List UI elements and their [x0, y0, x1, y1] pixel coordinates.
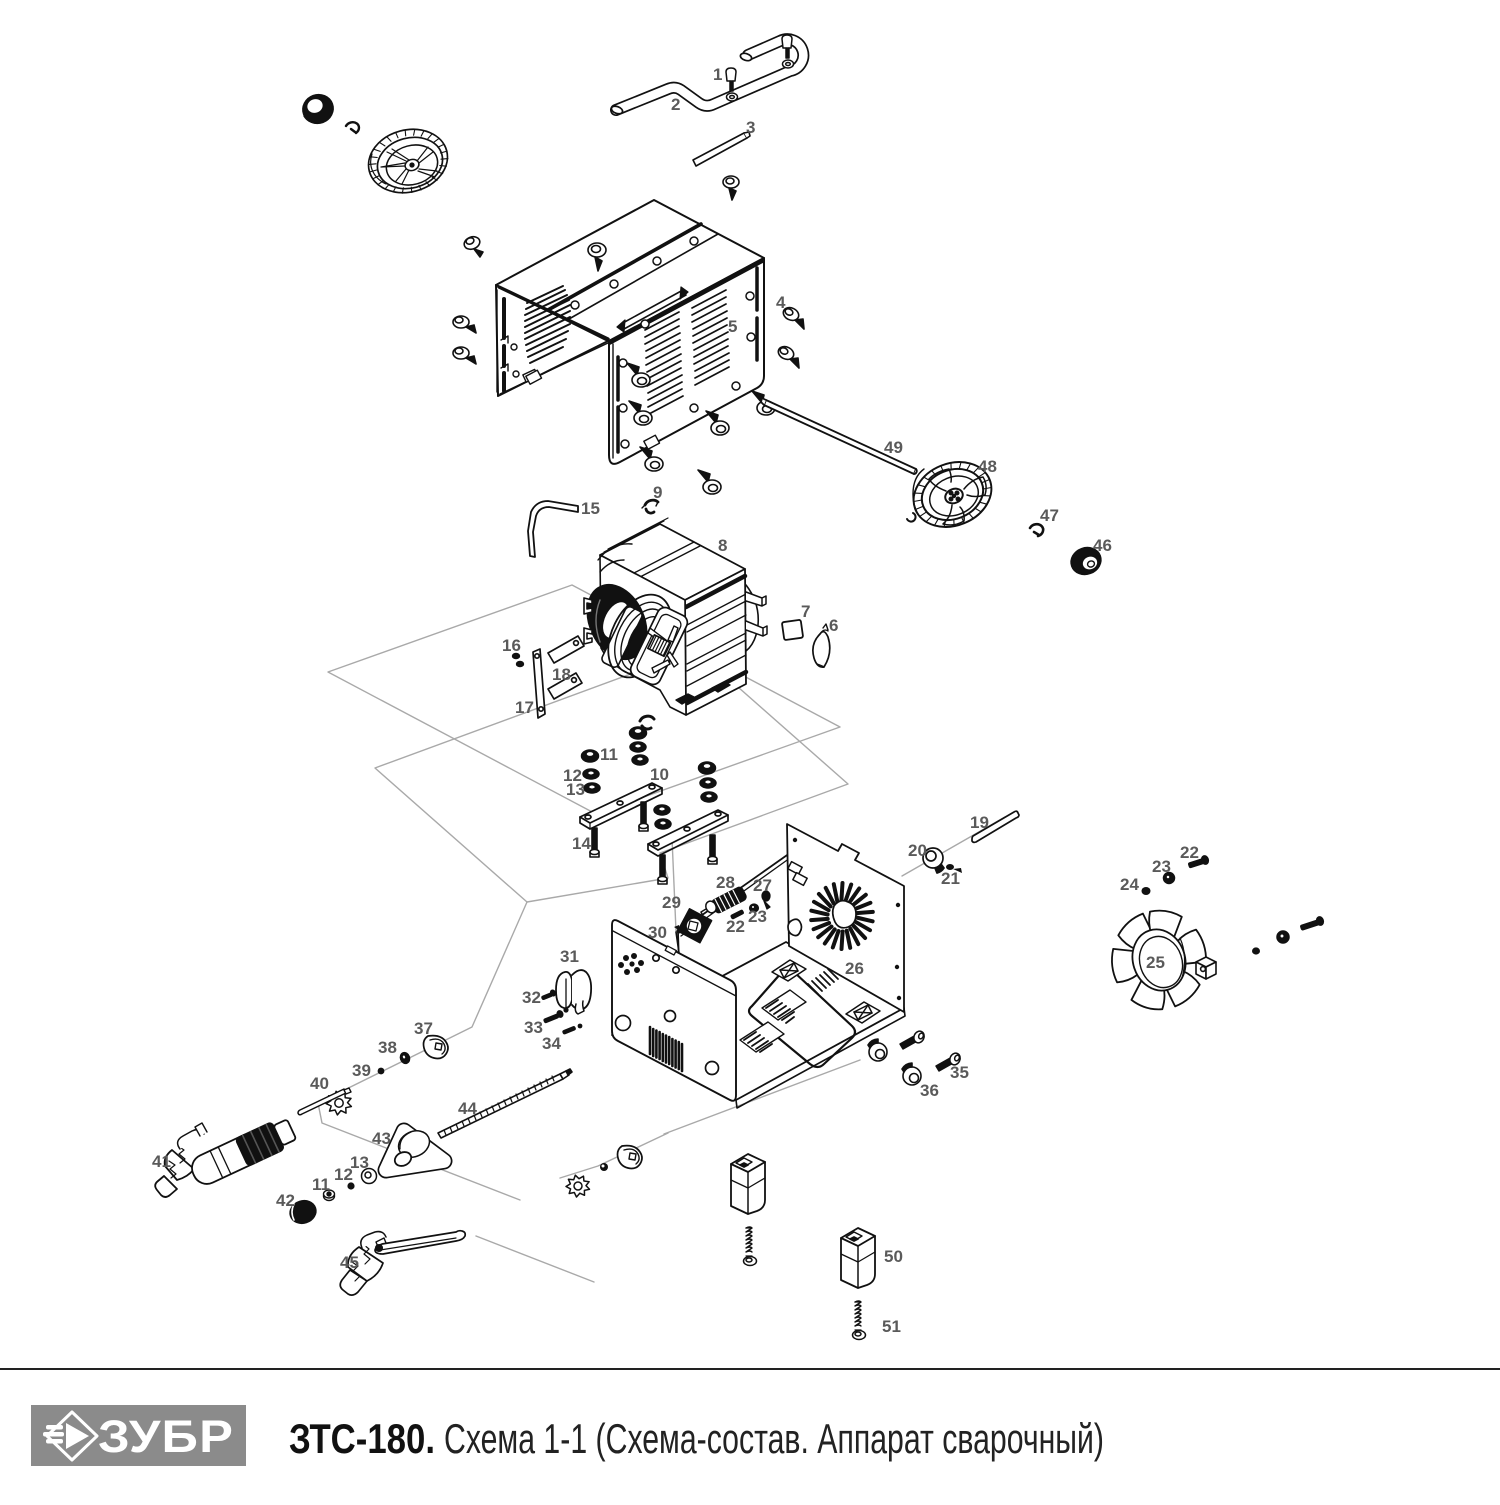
svg-text:23: 23	[748, 907, 767, 926]
svg-text:2: 2	[671, 95, 680, 114]
svg-text:41: 41	[152, 1152, 171, 1171]
svg-text:23: 23	[1152, 857, 1171, 876]
svg-text:42: 42	[276, 1191, 295, 1210]
svg-text:40: 40	[310, 1074, 329, 1093]
svg-text:16: 16	[502, 636, 521, 655]
svg-text:7: 7	[801, 602, 810, 621]
svg-text:5: 5	[728, 317, 737, 336]
svg-text:ЗТС-180.: ЗТС-180.	[289, 1415, 435, 1462]
svg-text:14: 14	[572, 834, 591, 853]
svg-text:28: 28	[716, 873, 735, 892]
svg-text:48: 48	[978, 457, 997, 476]
svg-text:13: 13	[350, 1153, 369, 1172]
svg-text:10: 10	[650, 765, 669, 784]
svg-text:38: 38	[378, 1038, 397, 1057]
svg-text:26: 26	[845, 959, 864, 978]
svg-text:27: 27	[753, 876, 772, 895]
svg-text:6: 6	[829, 616, 838, 635]
svg-text:47: 47	[1040, 506, 1059, 525]
svg-text:3: 3	[746, 118, 755, 137]
svg-text:15: 15	[581, 499, 600, 518]
svg-text:36: 36	[920, 1081, 939, 1100]
svg-text:22: 22	[726, 917, 745, 936]
svg-text:46: 46	[1093, 536, 1112, 555]
svg-text:22: 22	[1180, 843, 1199, 862]
svg-text:50: 50	[884, 1247, 903, 1266]
svg-text:34: 34	[542, 1034, 561, 1053]
svg-text:30: 30	[648, 923, 667, 942]
svg-text:8: 8	[718, 536, 727, 555]
svg-text:18: 18	[552, 665, 571, 684]
svg-text:4: 4	[776, 293, 786, 312]
svg-text:ЗУБР: ЗУБР	[98, 1411, 234, 1462]
svg-text:31: 31	[560, 947, 579, 966]
svg-text:21: 21	[941, 869, 960, 888]
svg-text:35: 35	[950, 1063, 969, 1082]
svg-text:45: 45	[340, 1253, 359, 1272]
svg-text:1: 1	[713, 65, 722, 84]
svg-text:20: 20	[908, 841, 927, 860]
svg-text:13: 13	[566, 780, 585, 799]
svg-text:39: 39	[352, 1061, 371, 1080]
svg-text:43: 43	[372, 1129, 391, 1148]
svg-text:24: 24	[1120, 875, 1139, 894]
svg-text:29: 29	[662, 893, 681, 912]
svg-text:25: 25	[1146, 953, 1165, 972]
svg-text:11: 11	[312, 1175, 330, 1194]
svg-text:32: 32	[522, 988, 541, 1007]
svg-text:17: 17	[515, 698, 534, 717]
svg-text:Схема 1-1 (Схема-состав. Аппар: Схема 1-1 (Схема-состав. Аппарат сварочн…	[444, 1415, 1104, 1462]
svg-text:49: 49	[884, 438, 903, 457]
svg-text:19: 19	[970, 813, 989, 832]
svg-text:9: 9	[653, 483, 662, 502]
svg-text:44: 44	[458, 1099, 477, 1118]
svg-text:37: 37	[414, 1019, 433, 1038]
svg-text:33: 33	[524, 1018, 543, 1037]
svg-text:11: 11	[600, 745, 618, 764]
svg-text:51: 51	[882, 1317, 901, 1336]
